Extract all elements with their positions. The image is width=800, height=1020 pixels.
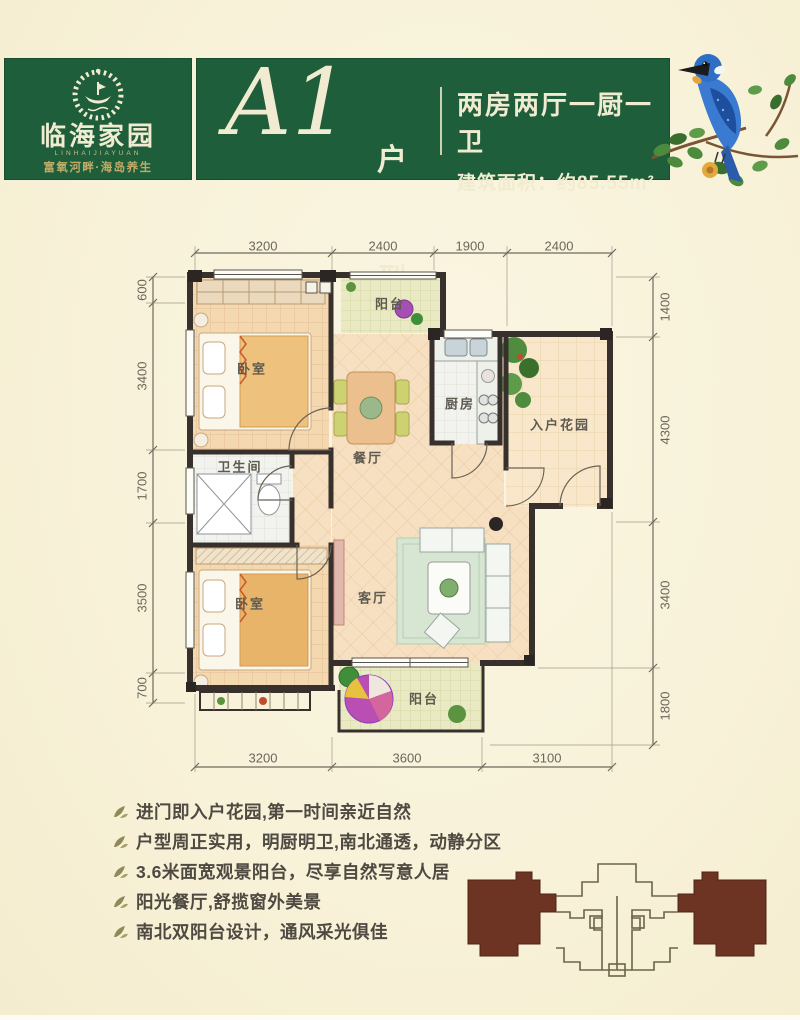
dim-top-1: 3200 — [241, 239, 285, 254]
feature-item: 户型周正实用，明厨明卫,南北通透，动静分区 — [112, 831, 501, 852]
highlighted-unit-right — [678, 872, 766, 956]
feature-text: 进门即入户花园,第一时间亲近自然 — [136, 799, 411, 824]
dim-right-4: 1800 — [658, 684, 673, 728]
dim-bottom-2: 3600 — [385, 751, 429, 766]
room-label-dining: 餐厅 — [353, 448, 383, 467]
dim-bottom-3: 3100 — [525, 751, 569, 766]
tv-cabinet — [334, 540, 344, 625]
room-label-balcony-south: 阳台 — [409, 689, 439, 708]
bottom-strip — [0, 1015, 800, 1020]
feature-item: 阳光餐厅,舒揽窗外美景 — [112, 891, 501, 912]
dim-right-1: 1400 — [658, 285, 673, 329]
flyer-page: 临海家园 LINHAIJIAYUAN 富氧河畔·海岛养生 A1 户型 两房两厅一… — [0, 0, 800, 1020]
dresser — [196, 548, 327, 564]
feature-item: 南北双阳台设计，通风采光俱佳 — [112, 921, 501, 942]
leaf-icon — [112, 834, 129, 849]
feature-list: 进门即入户花园,第一时间亲近自然 户型周正实用，明厨明卫,南北通透，动静分区 3… — [112, 801, 501, 942]
leaf-icon — [112, 924, 129, 939]
dim-top-4: 2400 — [537, 239, 581, 254]
dim-right-2: 4300 — [658, 408, 673, 452]
dim-bottom-1: 3200 — [241, 751, 285, 766]
feature-text: 阳光餐厅,舒揽窗外美景 — [136, 889, 321, 914]
dim-left-2: 3400 — [135, 354, 150, 398]
dim-right-3: 3400 — [658, 573, 673, 617]
sofa — [486, 544, 510, 642]
shower-stall — [197, 474, 251, 534]
feature-text: 南北双阳台设计，通风采光俱佳 — [136, 919, 388, 944]
toilet — [257, 474, 281, 515]
room-label-kitchen: 厨房 — [445, 394, 475, 413]
leaf-icon — [112, 864, 129, 879]
keyplan-outline — [556, 864, 678, 976]
feature-text: 户型周正实用，明厨明卫,南北通透，动静分区 — [136, 829, 501, 854]
room-label-balcony-north: 阳台 — [375, 294, 405, 313]
leaf-icon — [112, 804, 129, 819]
bed-1 — [194, 313, 311, 447]
feature-text: 3.6米面宽观景阳台，尽享自然写意人居 — [136, 859, 450, 884]
dim-left-1: 600 — [135, 268, 150, 312]
dim-left-5: 700 — [135, 666, 150, 710]
room-label-entry-garden: 入户花园 — [530, 415, 590, 434]
dim-left-4: 3500 — [135, 576, 150, 620]
hall-floor — [293, 452, 331, 545]
feature-item: 进门即入户花园,第一时间亲近自然 — [112, 801, 501, 822]
highlighted-unit-left — [468, 872, 556, 956]
feature-item: 3.6米面宽观景阳台，尽享自然写意人居 — [112, 861, 501, 882]
leaf-icon — [112, 894, 129, 909]
dim-left-3: 1700 — [135, 464, 150, 508]
room-label-bedroom-1: 卧室 — [237, 359, 267, 378]
building-key-plan — [452, 852, 782, 1007]
room-label-bedroom-2: 卧室 — [235, 594, 265, 613]
room-label-bathroom: 卫生间 — [217, 457, 262, 476]
planter-platform — [200, 692, 310, 710]
dim-top-3: 1900 — [448, 239, 492, 254]
room-label-living: 客厅 — [358, 588, 388, 607]
dim-top-2: 2400 — [361, 239, 405, 254]
